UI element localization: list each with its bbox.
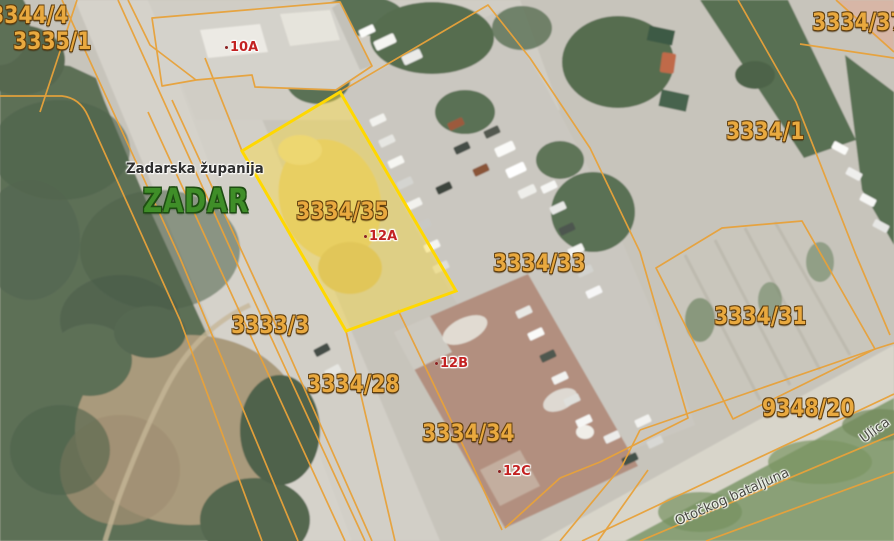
- address-label-12a: 12A: [364, 230, 397, 243]
- address-label-10a: 10A: [225, 41, 258, 54]
- parcel-label-3334-28: 3334/28: [307, 372, 400, 396]
- parcel-label-3334-31: 3334/31: [714, 304, 807, 328]
- parcel-label-3334-37: 3334/37: [812, 10, 894, 34]
- aerial-basemap: [0, 0, 894, 541]
- parcel-label-3333-3: 3333/3: [231, 313, 309, 337]
- aerial-ground: [0, 0, 894, 541]
- city-label: ZADAR: [143, 184, 249, 217]
- parcel-label-3334-34: 3334/34: [422, 421, 515, 445]
- parcel-label-3334-1: 3334/1: [726, 119, 804, 143]
- parcel-label-9348-20: 9348/20: [762, 396, 855, 420]
- cadastral-map-viewport[interactable]: 3344/4 3335/1 3334/37 3334/1 3334/35 333…: [0, 0, 894, 541]
- parcel-label-3335-1: 3335/1: [13, 29, 91, 53]
- parcel-label-3334-33: 3334/33: [493, 251, 586, 275]
- county-label: Zadarska županija: [126, 162, 264, 177]
- parcel-label-3334-35: 3334/35: [296, 199, 389, 223]
- parcel-label-3344-4: 3344/4: [0, 3, 68, 27]
- address-label-12b: 12B: [435, 357, 468, 370]
- address-label-12c: 12C: [498, 465, 531, 478]
